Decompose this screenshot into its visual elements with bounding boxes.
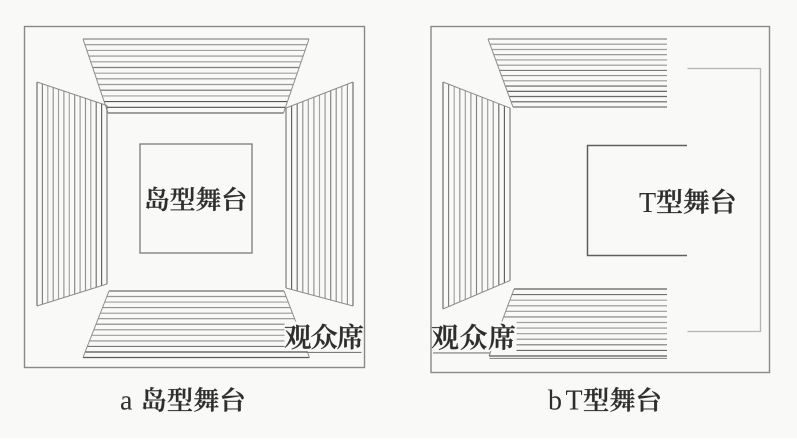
svg-text:a: a — [120, 386, 133, 417]
svg-text:T: T — [639, 188, 656, 219]
svg-text:T: T — [566, 386, 583, 417]
svg-text:b: b — [548, 386, 562, 417]
